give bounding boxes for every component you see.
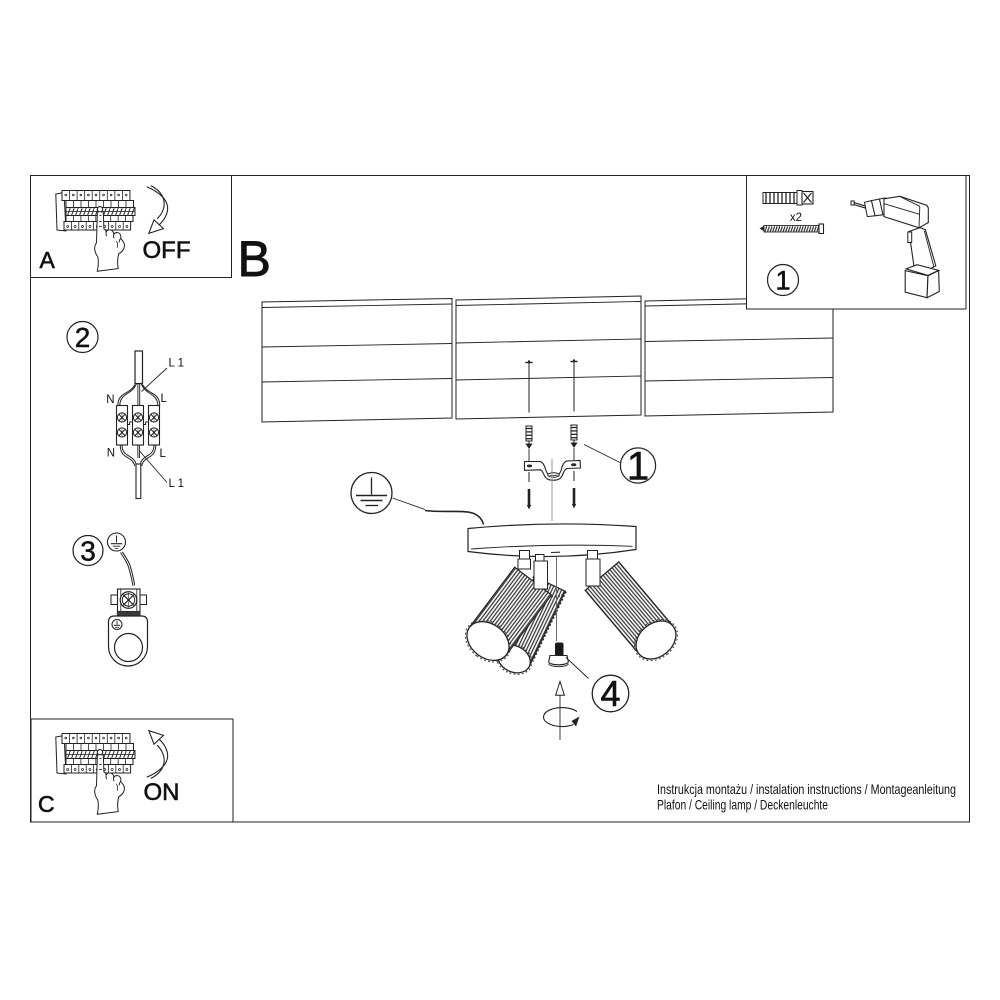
svg-text:OFF: OFF <box>143 237 191 264</box>
svg-text:Plafon / Ceiling lamp / Decken: Plafon / Ceiling lamp / Deckenleuchte <box>657 797 828 813</box>
svg-text:B: B <box>238 231 271 287</box>
svg-text:C: C <box>38 791 55 817</box>
svg-text:2: 2 <box>75 322 91 353</box>
svg-text:L: L <box>160 448 167 460</box>
svg-text:N: N <box>107 448 115 460</box>
svg-text:A: A <box>40 247 56 273</box>
svg-text:L: L <box>161 393 168 405</box>
svg-text:N: N <box>106 394 114 406</box>
svg-text:L 1: L 1 <box>169 358 185 370</box>
svg-text:L 1: L 1 <box>169 478 185 490</box>
svg-text:Instrukcja montażu / instalati: Instrukcja montażu / instalation instruc… <box>657 781 956 797</box>
svg-text:1: 1 <box>775 266 790 296</box>
svg-text:3: 3 <box>80 536 96 567</box>
svg-text:x2: x2 <box>790 212 802 224</box>
svg-text:ON: ON <box>144 779 180 806</box>
svg-text:1: 1 <box>627 445 649 489</box>
svg-text:4: 4 <box>600 673 620 714</box>
